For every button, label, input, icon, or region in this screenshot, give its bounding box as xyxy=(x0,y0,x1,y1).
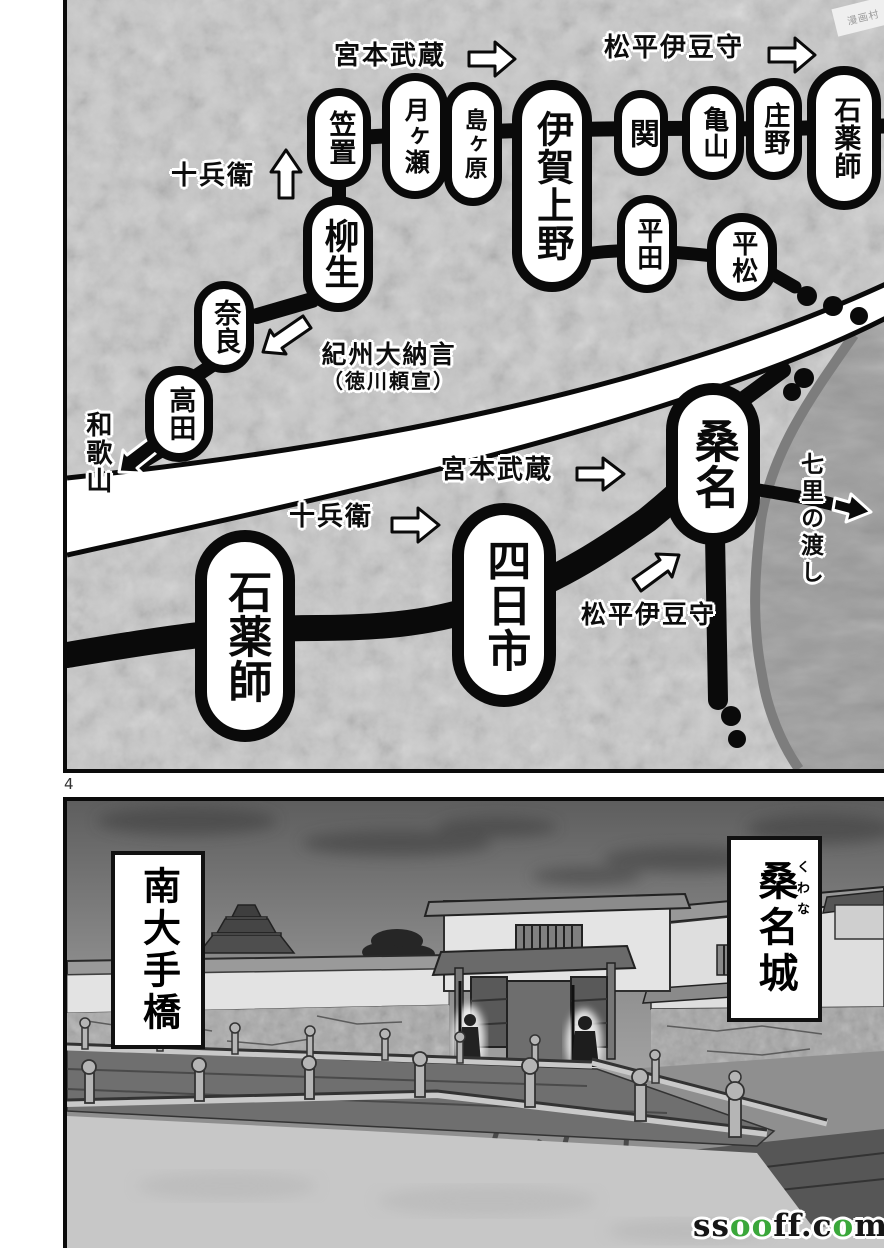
station-yokkaichi: 四日市 xyxy=(452,503,556,707)
caption-kuwana-furigana: くわな xyxy=(793,860,812,923)
musashi-label-top: 宮本武蔵 xyxy=(334,42,446,72)
station-kameyama: 亀山 xyxy=(682,86,744,180)
station-hirata: 平田 xyxy=(617,195,677,293)
site-seg3: ff.c xyxy=(773,1208,832,1244)
station-kasagi: 笠置 xyxy=(307,88,371,188)
caption-kuwana-castle: 桑名城 くわな xyxy=(727,836,822,1022)
station-takada: 高田 xyxy=(145,366,213,462)
wakayama-label: 和歌山 xyxy=(81,411,111,511)
musashi-label-mid: 宮本武蔵 xyxy=(441,456,553,486)
site-seg2: oo xyxy=(730,1208,773,1244)
manga-page: 笠置 月ヶ瀬 島ヶ原 伊賀上野 関 亀山 庄野 石薬師 平田 平松 柳生 奈良 … xyxy=(0,0,884,1248)
kishu-label-line1: 紀州大納言 xyxy=(289,341,489,370)
gate-opening xyxy=(507,981,571,1061)
station-tsukigase: 月ヶ瀬 xyxy=(382,73,448,199)
kishu-label: 紀州大納言 （徳川頼宣） xyxy=(289,341,489,393)
page-number: 4 xyxy=(64,775,74,793)
site-seg5: m xyxy=(854,1208,884,1244)
station-ishiyakushi-top: 石薬師 xyxy=(807,66,881,210)
caption-minami-otebashi: 南大手橋 xyxy=(111,851,205,1049)
site-seg1: ss xyxy=(693,1208,730,1244)
jubei-label-top: 十兵衛 xyxy=(171,162,255,192)
station-hiramatsu: 平松 xyxy=(707,213,777,301)
station-yagyu: 柳生 xyxy=(303,196,373,312)
station-shono: 庄野 xyxy=(746,78,802,180)
station-iga-ueno: 伊賀上野 xyxy=(512,80,592,292)
matsudaira-label-mid: 松平伊豆守 xyxy=(581,601,716,630)
kishu-label-line2: （徳川頼宣） xyxy=(289,370,489,393)
site-seg4: o xyxy=(833,1208,855,1244)
watermark-site: ssooff.com xyxy=(693,1208,884,1244)
map-panel: 笠置 月ヶ瀬 島ヶ原 伊賀上野 関 亀山 庄野 石薬師 平田 平松 柳生 奈良 … xyxy=(63,0,884,773)
station-shimagahara: 島ヶ原 xyxy=(444,82,502,206)
matsudaira-label-top: 松平伊豆守 xyxy=(604,34,744,64)
shichiri-ferry-label: 七里の渡し xyxy=(796,452,822,622)
station-ishiyakushi-bottom: 石薬師 xyxy=(195,530,295,742)
station-nara: 奈良 xyxy=(194,281,254,373)
station-kuwana: 桑名 xyxy=(666,383,760,545)
scene-panel: 南大手橋 桑名城 くわな xyxy=(63,797,884,1248)
station-seki: 関 xyxy=(614,90,668,176)
jubei-label-mid: 十兵衛 xyxy=(289,503,373,533)
